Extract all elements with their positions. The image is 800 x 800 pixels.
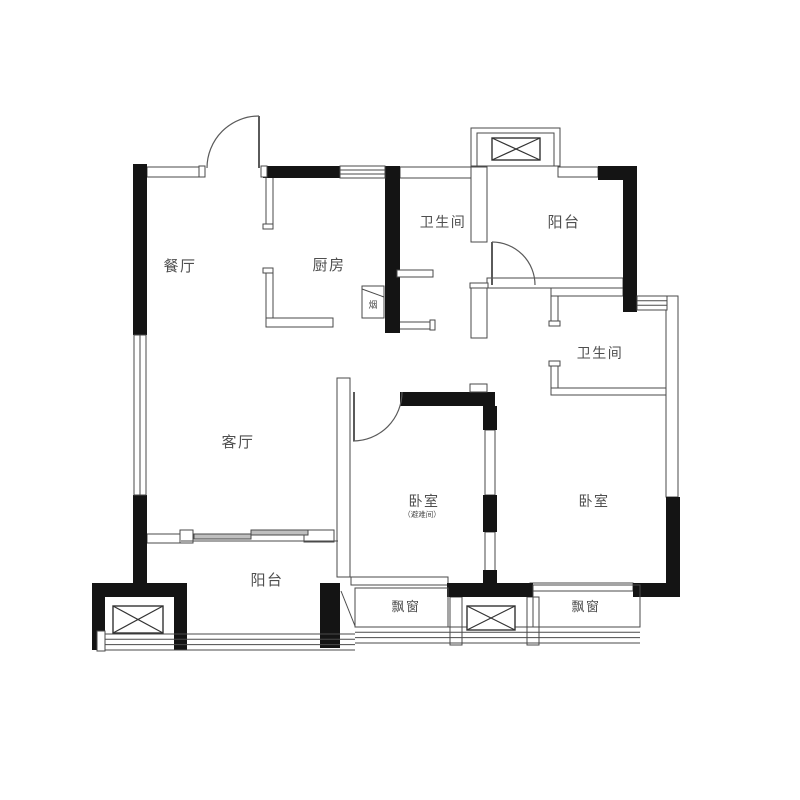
bathroom-top-label: 卫生间 (420, 214, 467, 230)
shaft-bottom-left (113, 606, 163, 633)
bay-window-left-label: 飘窗 (391, 599, 420, 614)
bathroom-right-window (637, 296, 667, 310)
dining-label: 餐厅 (163, 258, 196, 275)
balcony-bottom-label: 阳台 (250, 572, 283, 589)
entry-door (199, 116, 267, 177)
kitchen-label: 厨房 (312, 257, 345, 274)
shaft-top (471, 128, 560, 166)
bay-window-right-label: 飘窗 (571, 599, 600, 614)
bay-left-corner-brace (341, 591, 355, 626)
flue-label: 烟 (368, 299, 377, 310)
bathroom-top-fixture (397, 270, 433, 277)
bedroom-middle-sublabel: （避难间） (403, 509, 441, 519)
balcony-bottom-window (97, 631, 355, 651)
bedroom-middle-label: 卧室 (409, 493, 440, 509)
shaft-bottom-center (467, 606, 515, 630)
balcony-top-label: 阳台 (547, 214, 580, 231)
living-label: 客厅 (221, 434, 254, 451)
balcony-sliding-door (180, 530, 338, 543)
door-jambs (263, 224, 560, 366)
floorplan-drawing: 餐厅 厨房 卫生间 阳台 卫生间 客厅 卧室 （避难间） 卧室 阳台 飘窗 飘窗… (0, 0, 800, 800)
bedroom-right-label: 卧室 (579, 493, 610, 509)
kitchen-top-window (340, 166, 385, 178)
bathroom-right-label: 卫生间 (577, 345, 624, 361)
living-west-window (134, 335, 146, 495)
floorplan-page: 餐厅 厨房 卫生间 阳台 卫生间 客厅 卧室 （避难间） 卧室 阳台 飘窗 飘窗… (0, 0, 800, 800)
